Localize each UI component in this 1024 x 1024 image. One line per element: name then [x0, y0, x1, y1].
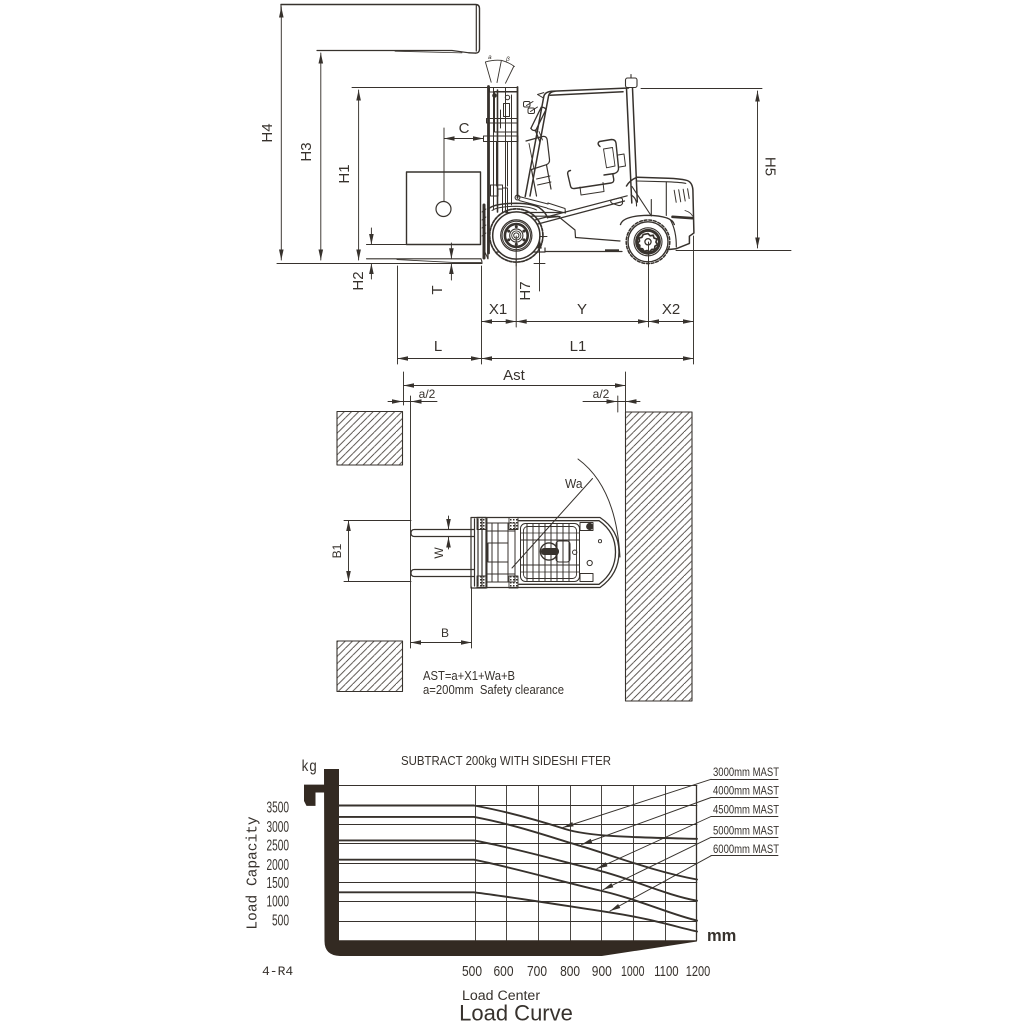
svg-text:4000mm MAST: 4000mm MAST	[713, 784, 780, 798]
svg-text:T: T	[429, 285, 446, 294]
svg-text:900: 900	[592, 963, 612, 980]
svg-text:mm: mm	[707, 927, 736, 945]
svg-text:3500: 3500	[267, 800, 290, 817]
svg-text:2500: 2500	[267, 838, 290, 855]
svg-text:1000: 1000	[621, 963, 645, 980]
svg-text:500: 500	[272, 913, 289, 930]
svg-text:β: β	[505, 56, 510, 63]
svg-text:3000mm MAST: 3000mm MAST	[713, 765, 780, 779]
svg-text:3000: 3000	[267, 819, 290, 836]
svg-text:H5: H5	[762, 157, 779, 176]
svg-text:AST=a+X1+Wa+B: AST=a+X1+Wa+B	[423, 669, 515, 683]
svg-text:W: W	[432, 547, 446, 559]
svg-text:Load Curve: Load Curve	[459, 1001, 573, 1024]
svg-text:2000: 2000	[267, 857, 290, 874]
svg-text:a/2: a/2	[593, 387, 610, 401]
svg-text:6000mm MAST: 6000mm MAST	[713, 842, 780, 856]
svg-text:600: 600	[494, 963, 514, 980]
svg-text:H1: H1	[336, 164, 353, 183]
svg-text:a: a	[488, 54, 492, 61]
svg-text:L1: L1	[570, 338, 587, 355]
svg-text:Wa: Wa	[565, 477, 583, 491]
svg-text:H3: H3	[298, 142, 315, 161]
svg-text:B1: B1	[330, 543, 344, 558]
svg-text:5000mm MAST: 5000mm MAST	[713, 823, 780, 837]
svg-text:1100: 1100	[654, 963, 679, 980]
svg-text:H4: H4	[259, 123, 276, 142]
svg-text:H7: H7	[517, 281, 534, 300]
svg-text:H2: H2	[350, 271, 367, 290]
svg-text:Ast: Ast	[503, 367, 526, 384]
svg-text:kg: kg	[301, 758, 317, 776]
svg-text:1500: 1500	[267, 875, 290, 892]
svg-text:700: 700	[527, 963, 547, 980]
svg-text:C: C	[459, 120, 470, 137]
svg-text:Y: Y	[577, 301, 587, 318]
svg-text:L: L	[434, 338, 442, 355]
svg-text:4500mm MAST: 4500mm MAST	[713, 803, 780, 817]
svg-text:Load Capacity: Load Capacity	[246, 816, 262, 929]
svg-text:1000: 1000	[267, 894, 290, 911]
svg-text:1200: 1200	[686, 963, 711, 980]
svg-text:SUBTRACT 200kg WITH SIDESHI FT: SUBTRACT 200kg WITH SIDESHI FTER	[401, 753, 611, 768]
svg-text:B: B	[441, 626, 449, 640]
svg-text:500: 500	[462, 963, 482, 980]
svg-text:X2: X2	[662, 301, 680, 318]
svg-text:a=200mm Safety clearance: a=200mm Safety clearance	[423, 683, 564, 697]
svg-text:4-R4: 4-R4	[262, 964, 293, 979]
svg-text:X1: X1	[489, 301, 507, 318]
svg-text:800: 800	[560, 963, 580, 980]
svg-text:a/2: a/2	[419, 387, 436, 401]
